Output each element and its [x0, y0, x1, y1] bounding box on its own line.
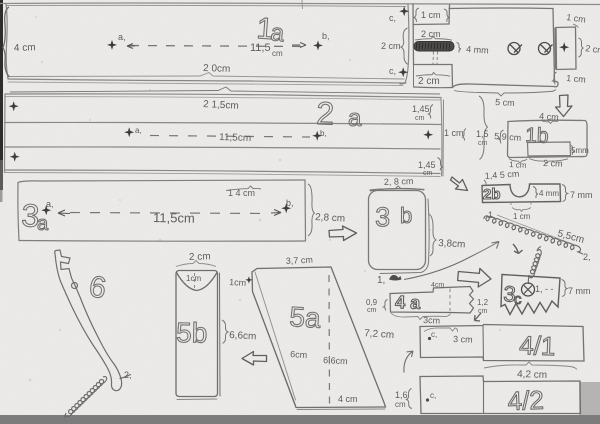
svg-text:a,: a, — [118, 32, 126, 42]
svg-text:4/2: 4/2 — [507, 385, 544, 416]
svg-text:2 0cm: 2 0cm — [203, 63, 231, 75]
svg-text:4 mm: 4 mm — [466, 44, 489, 56]
svg-text:c,: c, — [389, 66, 396, 76]
svg-text:1,6: 1,6 — [395, 390, 408, 400]
svg-text:3cm: 3cm — [423, 315, 440, 326]
svg-text:b: b — [400, 203, 412, 228]
svg-text:2,8 cm: 2,8 cm — [315, 212, 346, 225]
svg-text:11,5cm: 11,5cm — [219, 132, 251, 144]
svg-text:1,5: 1,5 — [476, 129, 489, 139]
svg-text:c: c — [514, 291, 522, 308]
svg-text:1cm: 1cm — [186, 274, 201, 283]
svg-text:3,8cm: 3,8cm — [438, 238, 466, 250]
svg-text:7 mm: 7 mm — [568, 286, 591, 296]
svg-text:1cm: 1cm — [229, 277, 247, 288]
svg-text:1b: 1b — [525, 124, 549, 148]
svg-text:5mm: 5mm — [571, 146, 589, 155]
svg-text:3: 3 — [375, 202, 391, 232]
svg-text:6cm: 6cm — [290, 349, 308, 360]
svg-text:1,45: 1,45 — [418, 160, 436, 170]
svg-text:7 mm: 7 mm — [570, 190, 593, 200]
svg-text:2 cm: 2 cm — [189, 251, 211, 263]
svg-text:1 cm: 1 cm — [444, 128, 464, 138]
svg-text:b,: b, — [286, 198, 294, 208]
svg-text:1 cm: 1 cm — [566, 73, 586, 85]
svg-text:a: a — [37, 213, 49, 235]
svg-text:2: 2 — [316, 95, 335, 132]
svg-text:c,: c, — [431, 330, 437, 339]
svg-text:4,2 cm: 4,2 cm — [517, 369, 547, 381]
svg-text:4/1: 4/1 — [519, 330, 556, 361]
svg-text:1,45: 1,45 — [412, 104, 430, 114]
svg-text:c,: c, — [389, 13, 396, 23]
svg-text:cm: cm — [423, 170, 433, 177]
svg-text:7,2 cm: 7,2 cm — [364, 328, 395, 341]
svg-text:cm: cm — [395, 400, 406, 409]
svg-text:c,: c, — [430, 391, 436, 400]
svg-text:1, - -: 1, - - — [535, 284, 554, 294]
svg-text:cm: cm — [415, 115, 425, 122]
svg-text:2 cm: 2 cm — [418, 76, 440, 87]
svg-text:3 cm: 3 cm — [453, 334, 473, 345]
svg-text:2,: 2, — [124, 370, 132, 380]
svg-text:cm: cm — [478, 308, 488, 315]
svg-text:2 cm: 2 cm — [543, 158, 563, 169]
svg-text:1,2: 1,2 — [477, 298, 489, 307]
svg-text:3,7 cm: 3,7 cm — [286, 255, 314, 266]
svg-text:1,: 1, — [377, 275, 385, 286]
svg-text:a: a — [348, 105, 362, 132]
svg-text:a,: a, — [135, 126, 142, 135]
svg-text:cm: cm — [478, 140, 488, 147]
svg-text:2 cm: 2 cm — [421, 29, 441, 39]
svg-text:2 cm: 2 cm — [381, 41, 401, 51]
svg-text:2, 8 cm: 2, 8 cm — [384, 176, 414, 187]
svg-text:a,: a, — [46, 199, 54, 209]
svg-text:2,: 2, — [583, 252, 591, 262]
svg-text:6,6cm: 6,6cm — [229, 330, 257, 342]
svg-text:6,6cm: 6,6cm — [323, 355, 348, 366]
svg-text:5a: 5a — [289, 301, 322, 334]
svg-text:cm: cm — [367, 307, 377, 314]
svg-text:1 4 cm: 1 4 cm — [228, 188, 255, 198]
svg-text:5,9 cm: 5,9 cm — [494, 131, 522, 143]
svg-text:1 cm: 1 cm — [421, 10, 441, 20]
svg-text:5b: 5b — [176, 317, 208, 349]
svg-text:4 a: 4 a — [395, 292, 422, 313]
svg-text:1,: 1, — [488, 210, 496, 220]
svg-text:2 1,5cm: 2 1,5cm — [203, 99, 239, 112]
svg-text:11,5cm: 11,5cm — [153, 210, 195, 226]
svg-text:4 cm: 4 cm — [338, 394, 358, 404]
svg-text:4cm: 4cm — [431, 282, 444, 289]
svg-text:4 mm: 4 mm — [539, 189, 559, 198]
svg-text:b,: b, — [322, 31, 330, 41]
svg-text:cm: cm — [272, 49, 283, 58]
svg-text:0,9: 0,9 — [366, 298, 378, 307]
svg-text:4 cm: 4 cm — [539, 111, 559, 122]
svg-text:5 cm: 5 cm — [495, 97, 515, 108]
svg-text:4 cm: 4 cm — [14, 42, 36, 54]
svg-text:2b: 2b — [483, 186, 501, 203]
svg-text:1 cm: 1 cm — [513, 212, 531, 221]
